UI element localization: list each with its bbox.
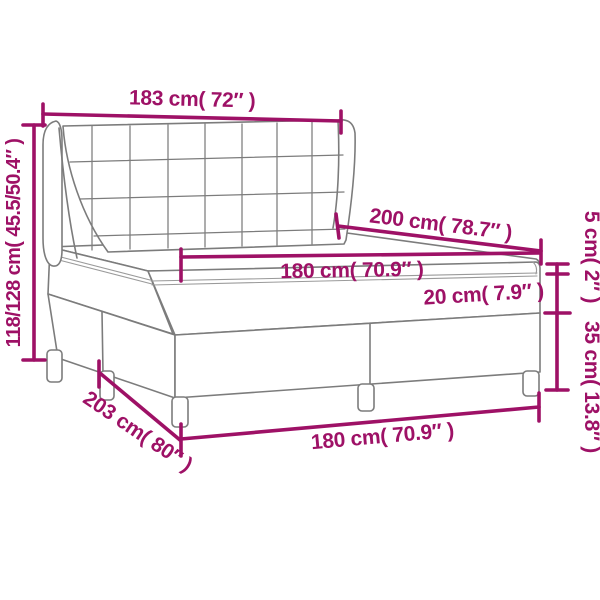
headboard-face — [63, 120, 355, 252]
dim-right-heights — [545, 264, 570, 390]
leg — [523, 371, 539, 396]
dimension-label: 118/128 cm( 45.5/50.4″ ) — [3, 139, 25, 348]
leg — [47, 350, 62, 382]
dimension-label: 35 cm( 13.8″ ) — [580, 321, 600, 453]
bed-dimension-diagram: 183 cm( 72″ ) 118/128 cm( 45.5/50.4″ ) 2… — [0, 0, 600, 600]
headboard-left-wing — [43, 121, 62, 266]
base-left-seam — [102, 312, 103, 373]
dimension-label: 183 cm( 72″ ) — [129, 86, 256, 112]
dimension-label: 5 cm( 2″ ) — [580, 211, 600, 303]
dimension-label: 180 cm( 70.9″ ) — [280, 258, 424, 283]
diagram-canvas: 183 cm( 72″ ) 118/128 cm( 45.5/50.4″ ) 2… — [0, 0, 600, 600]
leg — [172, 397, 188, 427]
dim-total-height — [23, 125, 45, 360]
leg — [358, 384, 374, 411]
